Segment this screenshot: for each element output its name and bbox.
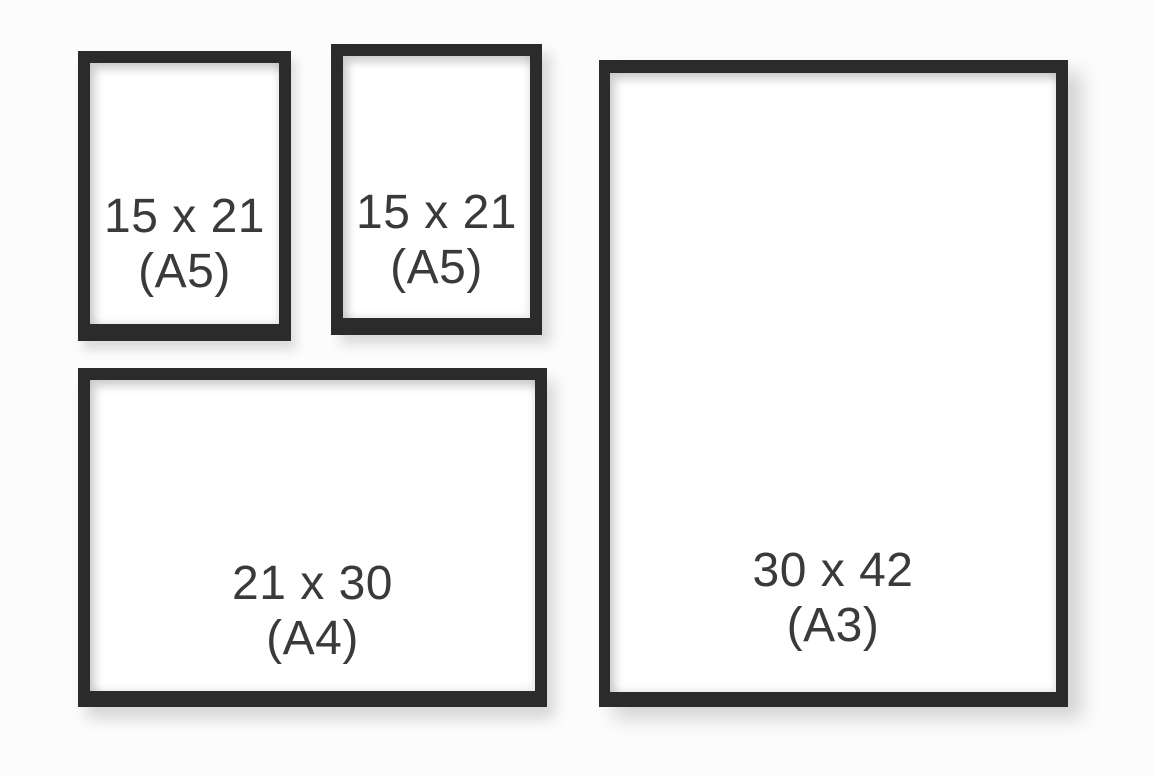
frame-a5-top-left-mat: 15 x 21 (A5): [90, 63, 279, 324]
frame-a3-right-label: 30 x 42 (A3): [753, 543, 914, 654]
format-text: (A5): [356, 240, 517, 296]
frame-a5-top-middle-label: 15 x 21 (A5): [356, 185, 517, 296]
format-text: (A3): [753, 598, 914, 654]
size-text: 15 x 21: [104, 189, 265, 245]
frame-a4-bottom-left: 21 x 30 (A4): [78, 368, 547, 707]
size-text: 30 x 42: [753, 543, 914, 599]
frame-a3-right: 30 x 42 (A3): [599, 60, 1068, 707]
size-text: 15 x 21: [356, 185, 517, 241]
frame-a3-right-mat: 30 x 42 (A3): [610, 73, 1056, 692]
frame-a4-bottom-left-mat: 21 x 30 (A4): [90, 380, 535, 691]
size-text: 21 x 30: [232, 556, 393, 612]
format-text: (A5): [104, 244, 265, 300]
frame-a5-top-left-label: 15 x 21 (A5): [104, 189, 265, 300]
frame-a4-bottom-left-label: 21 x 30 (A4): [232, 556, 393, 667]
frame-a5-top-middle: 15 x 21 (A5): [331, 44, 542, 335]
frame-size-diagram: 15 x 21 (A5) 15 x 21 (A5) 30 x 42 (A3) 2…: [0, 0, 1154, 777]
frame-a5-top-left: 15 x 21 (A5): [78, 51, 291, 341]
frame-a5-top-middle-mat: 15 x 21 (A5): [343, 56, 530, 318]
format-text: (A4): [232, 611, 393, 667]
